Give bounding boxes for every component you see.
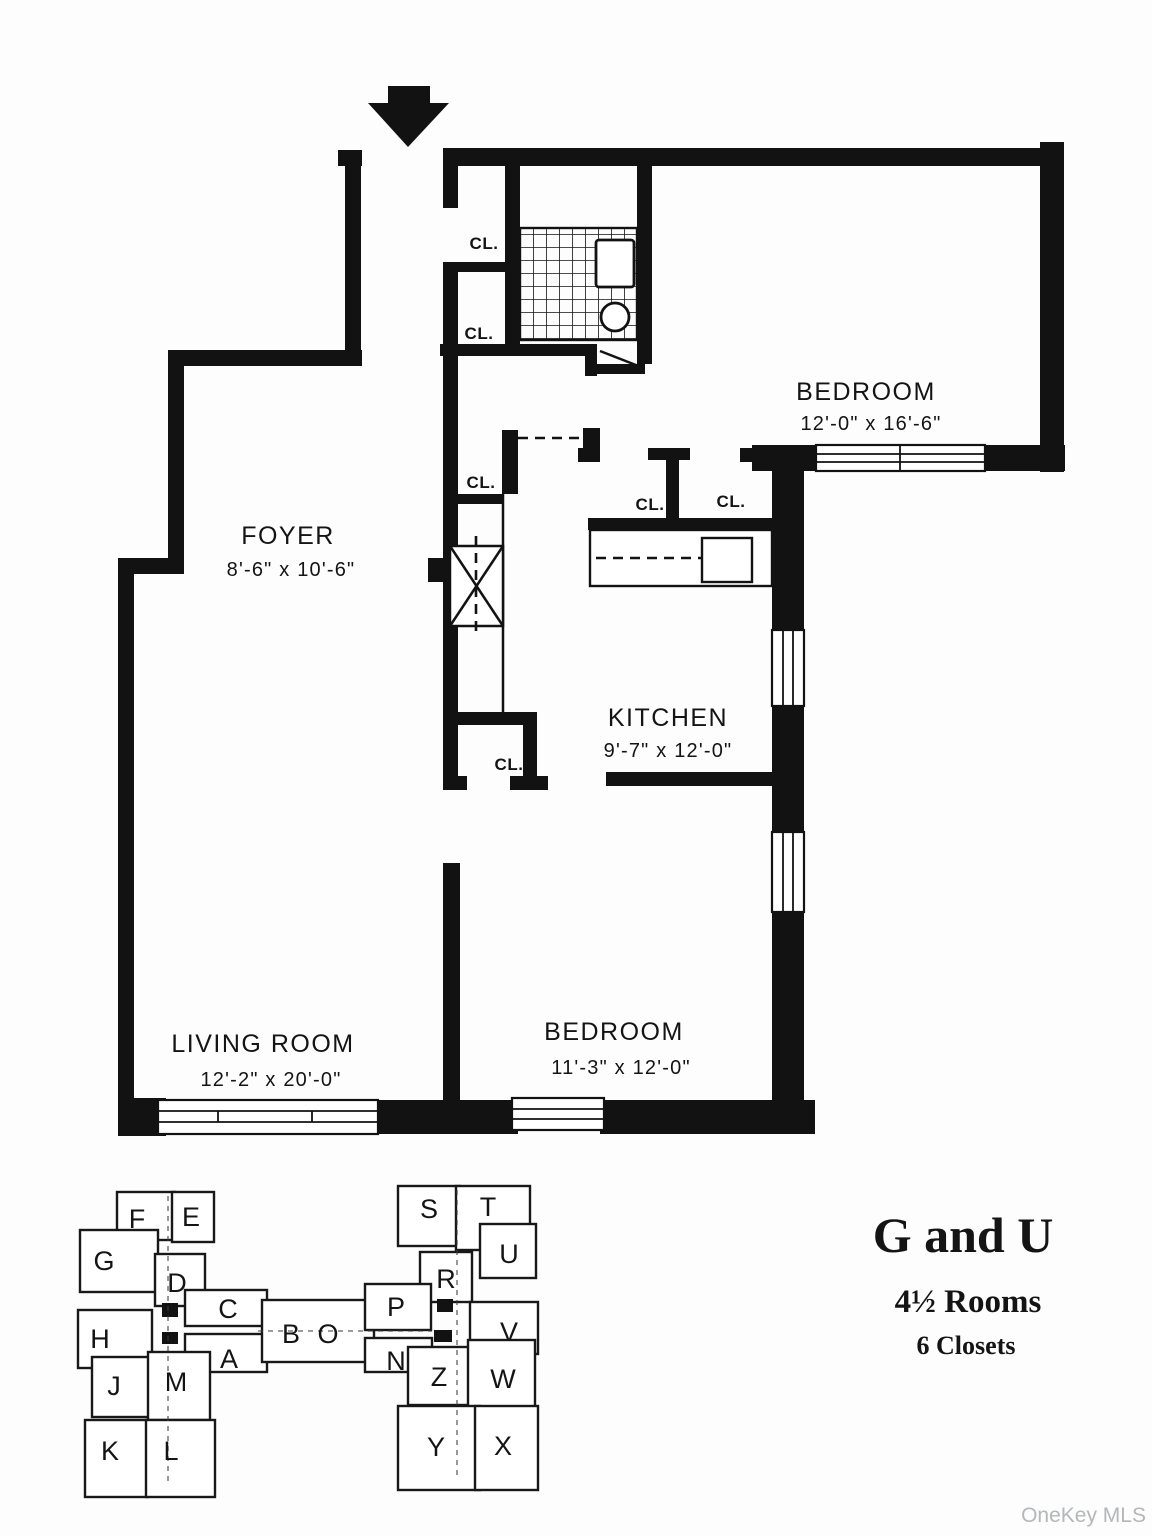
bedroom-bottom-window (512, 1098, 604, 1130)
unit-P: P (387, 1292, 405, 1322)
unit-B: B (282, 1319, 300, 1349)
closet-label-3: CL. (467, 473, 496, 492)
unit-G: G (93, 1246, 114, 1276)
watermark: OneKey MLS (1021, 1504, 1146, 1527)
dining-bay-window (772, 832, 804, 912)
unit-K: K (101, 1436, 119, 1466)
unit-D: D (167, 1268, 187, 1298)
unit-V: V (500, 1317, 518, 1347)
bedroom-top-window (816, 445, 985, 471)
unit-X: X (494, 1431, 512, 1461)
closet-label-2: CL. (465, 324, 494, 343)
unit-O: O (317, 1319, 338, 1349)
kitchen-label: KITCHEN (608, 704, 728, 732)
unit-U: U (499, 1239, 519, 1269)
unit-Y: Y (427, 1432, 445, 1462)
unit-H: H (90, 1324, 110, 1354)
bedroom-top-dims: 12'-0" x 16'-6" (800, 413, 941, 435)
unit-Z: Z (431, 1362, 448, 1392)
unit-A: A (220, 1344, 238, 1374)
kitchen-window (772, 630, 804, 706)
legend-rooms-line: 4½ Rooms (895, 1284, 1042, 1320)
floor-plan-svg: FOYER 8'-6" x 10'-6" BEDROOM 12'-0" x 16… (0, 0, 1152, 1536)
unit-M: M (165, 1367, 188, 1397)
unit-S: S (420, 1194, 438, 1224)
legend-closets-line: 6 Closets (917, 1331, 1016, 1360)
kitchen-sink (702, 538, 752, 582)
kitchen-counter (590, 530, 772, 586)
bedroom-top-label: BEDROOM (796, 378, 936, 406)
living-room-window (158, 1100, 378, 1134)
living-room-label: LIVING ROOM (171, 1030, 354, 1058)
unit-E: E (182, 1202, 200, 1232)
unit-W: W (490, 1364, 516, 1394)
entrance-arrow-icon (368, 86, 449, 147)
closet-label-4: CL. (636, 495, 665, 514)
closet-label-6: CL. (495, 755, 524, 774)
foyer-label: FOYER (241, 522, 335, 550)
toilet (601, 303, 629, 331)
bathroom-sink (596, 240, 634, 287)
unit-R: R (436, 1264, 456, 1294)
unit-F: F (129, 1204, 146, 1234)
legend-title: G and U (873, 1207, 1054, 1263)
unit-C: C (218, 1294, 238, 1324)
unit-N: N (386, 1346, 406, 1376)
legend: G and U 4½ Rooms 6 Closets (873, 1207, 1054, 1360)
unit-J: J (107, 1371, 121, 1401)
bedroom-bottom-label: BEDROOM (544, 1018, 684, 1046)
kitchen-dims: 9'-7" x 12'-0" (604, 740, 733, 762)
unit-T: T (480, 1192, 497, 1222)
floor-plan-page: FOYER 8'-6" x 10'-6" BEDROOM 12'-0" x 16… (0, 0, 1152, 1536)
closet-label-1: CL. (470, 234, 499, 253)
closet-label-5: CL. (717, 492, 746, 511)
key-plan: F E G D C B O H A J M K L S T U R P V N … (78, 1186, 538, 1497)
living-room-dims: 12'-2" x 20'-0" (200, 1069, 341, 1091)
foyer-dims: 8'-6" x 10'-6" (227, 559, 356, 581)
bedroom-bottom-dims: 11'-3" x 12'-0" (551, 1057, 691, 1079)
unit-L: L (163, 1436, 178, 1466)
